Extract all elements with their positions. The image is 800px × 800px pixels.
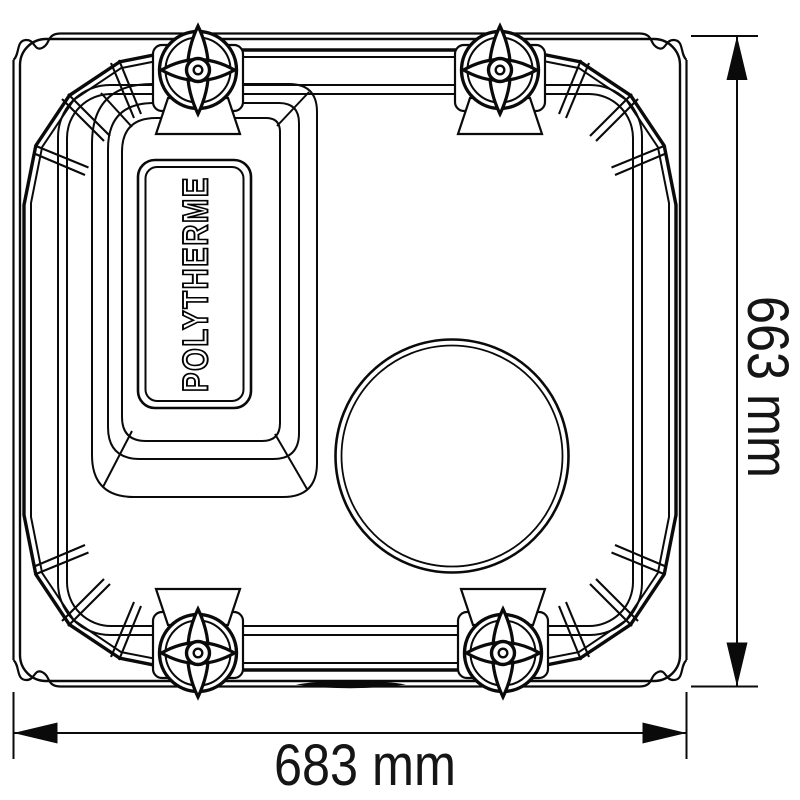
- brand-label-text: POLYTHERME: [177, 176, 216, 392]
- lid-technical-drawing: POLYTHERME 663 mm 683 mm: [0, 0, 800, 800]
- technical-drawing-page: POLYTHERME 663 mm 683 mm: [0, 0, 800, 800]
- height-dimension-label: 663 mm: [735, 296, 800, 478]
- width-dimension-label: 683 mm: [274, 733, 456, 798]
